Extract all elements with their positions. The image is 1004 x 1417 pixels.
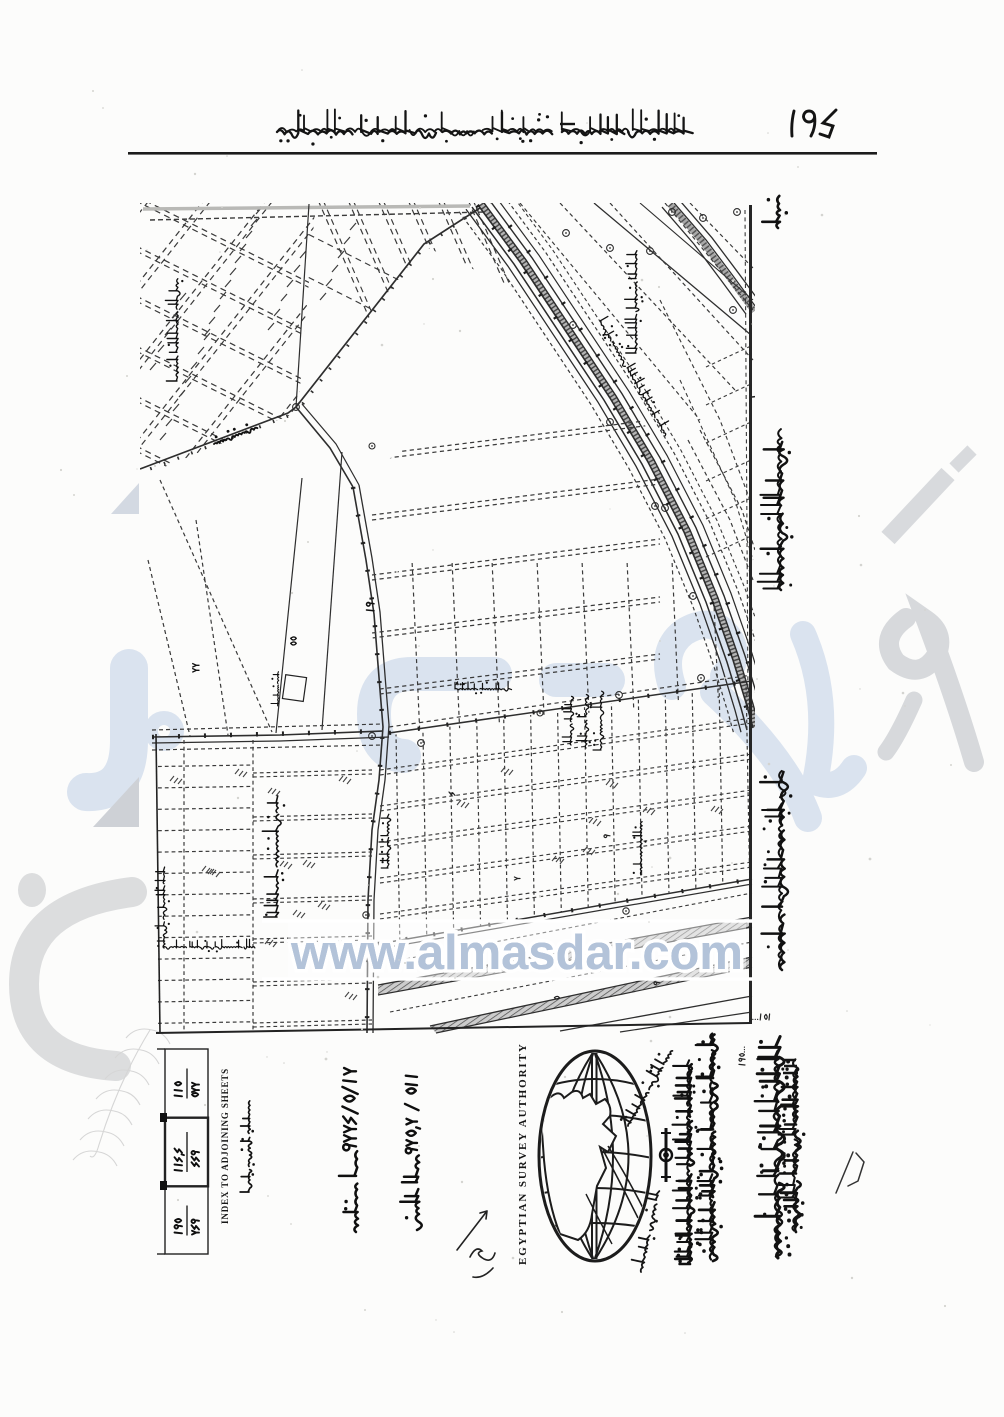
- svg-text:www.almasdar.com: www.almasdar.com: [290, 926, 743, 980]
- svg-text:INDEX TO ADJOINING SHEETS: INDEX TO ADJOINING SHEETS: [220, 1068, 230, 1224]
- svg-text:EGYPTIAN SURVEY AUTHORITY: EGYPTIAN SURVEY AUTHORITY: [517, 1043, 529, 1265]
